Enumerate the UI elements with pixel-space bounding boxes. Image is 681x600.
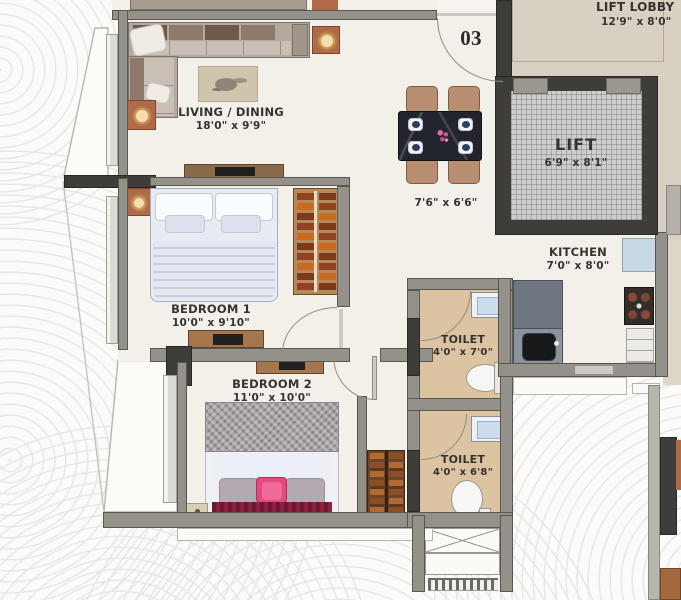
wardrobe1: [293, 188, 340, 295]
label-bedroom1: BEDROOM 1: [146, 303, 276, 316]
label-living: LIVING / DINING: [156, 106, 306, 119]
sofa-back-cushion: [241, 25, 275, 40]
floor-plan: 03 LIFT LOBBY 12'9" x 8'0" LIFT 6'9" x 8…: [0, 0, 681, 600]
window-living: [106, 34, 118, 166]
lobby-utility-box: [666, 185, 681, 235]
dining-chair: [448, 157, 480, 184]
rug: [198, 66, 258, 102]
shaft-wall-left: [412, 515, 425, 592]
duct-grill: [428, 578, 498, 591]
bed1: [150, 188, 278, 302]
label-toilet2-dims: 4'0" x 6'8": [420, 467, 506, 479]
wall-top: [112, 10, 437, 20]
unit-number: 03: [448, 26, 494, 50]
ledge-kitchen: [513, 377, 627, 395]
sink-icon: [522, 333, 556, 361]
nightstand: [124, 188, 152, 216]
label-toilet1-dims: 4'0" x 7'0": [420, 347, 506, 359]
dresser-bedroom1: [188, 330, 264, 348]
duct-box: [425, 553, 500, 575]
dining-chair: [406, 157, 438, 184]
label-lift: LIFT: [526, 136, 626, 154]
tv-console-living: [184, 164, 284, 178]
upper-unit-sofa: [130, 0, 307, 10]
window-bedroom1: [106, 196, 118, 344]
lift-door-jamb: [513, 78, 548, 94]
bed2-blanket: [205, 402, 339, 452]
sofa-back-cushion: [205, 25, 239, 40]
label-living-dims: 18'0" x 9'9": [156, 120, 306, 132]
lamp-table: [126, 100, 156, 130]
table-flowers: [436, 128, 450, 144]
wall-living-left: [118, 10, 128, 178]
wall-bedroom2-right: [357, 396, 367, 517]
kitchen-drawers: [626, 328, 654, 363]
sofa-back-cushion: [169, 25, 203, 40]
upper-unit-side-table: [312, 0, 338, 10]
label-toilet1: TOILET: [423, 334, 503, 347]
wall-bottom: [103, 512, 433, 528]
lift-door-jamb: [606, 78, 641, 94]
wall-toilet-divider: [407, 398, 513, 411]
plate: [458, 118, 473, 131]
kitchen-sink-counter: [513, 328, 563, 365]
sofa-armrest: [292, 24, 308, 56]
floor-corridor: [407, 240, 507, 280]
wall-neighbour-dark: [660, 437, 677, 535]
wall-bedroom1-right: [337, 186, 350, 307]
wall-bedroom2-left: [177, 362, 187, 517]
wall-stub: [64, 175, 156, 188]
label-kitchen: KITCHEN: [528, 246, 628, 259]
window-bedroom2: [163, 375, 177, 503]
wall-bedroom1-left: [118, 178, 128, 350]
wardrobe2: [367, 450, 405, 517]
wardrobe-neighbour: [676, 440, 681, 490]
wall-living-bedroom1: [150, 177, 350, 186]
wall-kitchen-right: [655, 232, 668, 377]
wardrobe-neighbour: [660, 568, 681, 600]
wall-toilet-left-dark: [407, 318, 420, 376]
dining-chair: [406, 86, 438, 113]
label-bedroom2-dims: 11'0" x 10'0": [207, 392, 337, 404]
plate: [408, 118, 423, 131]
label-dining-dims: 7'6" x 6'6": [396, 197, 496, 209]
label-kitchen-dims: 7'0" x 8'0": [528, 260, 628, 272]
label-toilet2: TOILET: [423, 454, 503, 467]
wall-neighbour: [648, 385, 660, 600]
label-lift-dims: 6'9" x 8'1": [526, 157, 626, 169]
label-bedroom2: BEDROOM 2: [207, 378, 337, 391]
label-bedroom1-dims: 10'0" x 9'10": [146, 317, 276, 329]
plate: [458, 141, 473, 154]
wall-toilet-left-dark: [407, 450, 420, 512]
stove: [624, 287, 654, 325]
lamp-table: [312, 26, 340, 54]
bed2-pillow-pink: [262, 482, 282, 500]
plate: [408, 141, 423, 154]
ledge-bedroom2: [177, 528, 433, 541]
dining-chair: [448, 86, 480, 113]
duct-cross-box: [425, 528, 500, 553]
kitchen-platform: [513, 280, 563, 330]
door-lintel-entrance: [437, 13, 505, 16]
label-lift-lobby: LIFT LOBBY: [596, 1, 681, 15]
door-leaf-bedroom1: [339, 309, 343, 353]
label-lift-lobby-dims: 12'9" x 8'0": [601, 16, 681, 28]
kitchen-service-gap: [575, 366, 613, 374]
shaft-wall-right: [500, 515, 513, 592]
lift-floor: [511, 91, 642, 220]
